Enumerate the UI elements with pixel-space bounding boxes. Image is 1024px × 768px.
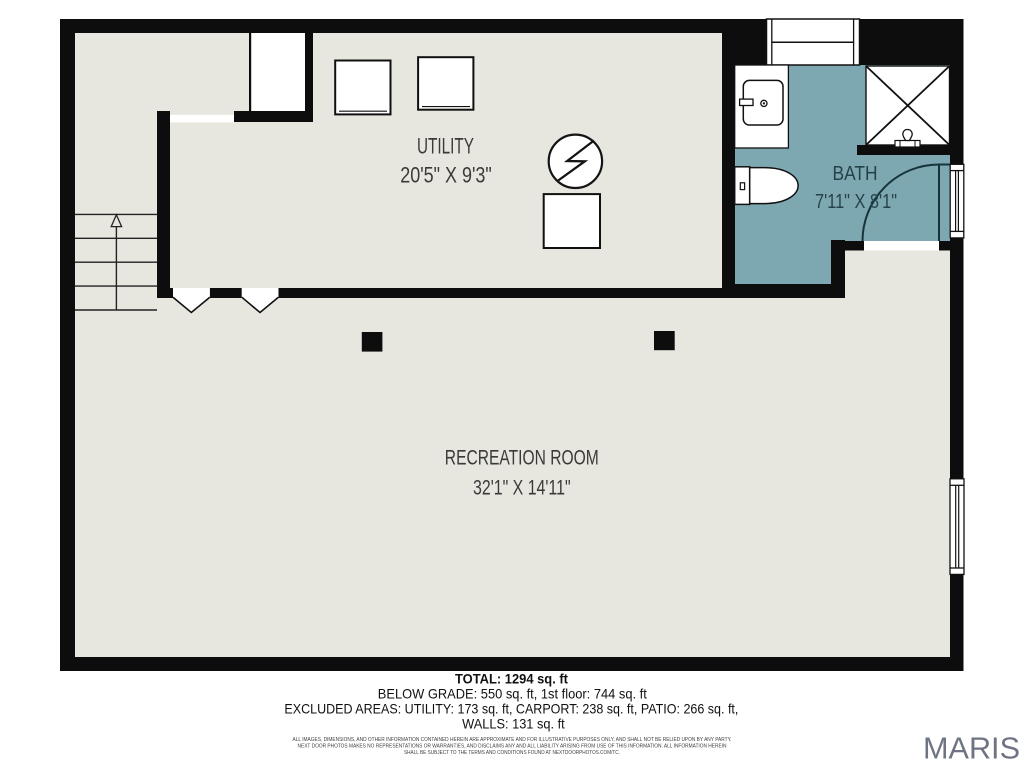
svg-text:NEXT DOOR PHOTOS MAKES NO REPR: NEXT DOOR PHOTOS MAKES NO REPRESENTATION… — [298, 744, 727, 750]
svg-text:SHALL BE SUBJECT TO THE TERMS: SHALL BE SUBJECT TO THE TERMS AND CONDIT… — [404, 750, 620, 756]
svg-text:7'11" X 8'1": 7'11" X 8'1" — [815, 191, 897, 213]
svg-text:BELOW GRADE: 550 sq. ft, 1st f: BELOW GRADE: 550 sq. ft, 1st floor: 744 … — [378, 687, 647, 702]
svg-text:ALL IMAGES, DIMENSIONS, AND OT: ALL IMAGES, DIMENSIONS, AND OTHER INFORM… — [293, 737, 732, 743]
svg-text:UTILITY: UTILITY — [417, 133, 474, 158]
svg-text:EXCLUDED AREAS: UTILITY: 173 s: EXCLUDED AREAS: UTILITY: 173 sq. ft, CAR… — [284, 702, 738, 717]
svg-text:TOTAL: 1294 sq. ft: TOTAL: 1294 sq. ft — [455, 672, 568, 687]
svg-text:RECREATION ROOM: RECREATION ROOM — [445, 447, 599, 470]
svg-text:BATH: BATH — [833, 163, 878, 185]
svg-text:MARIS: MARIS — [923, 732, 1020, 766]
svg-text:32'1" X 14'11": 32'1" X 14'11" — [473, 477, 571, 500]
svg-text:WALLS: 131 sq. ft: WALLS: 131 sq. ft — [462, 717, 565, 732]
svg-text:20'5" X 9'3": 20'5" X 9'3" — [400, 163, 492, 188]
